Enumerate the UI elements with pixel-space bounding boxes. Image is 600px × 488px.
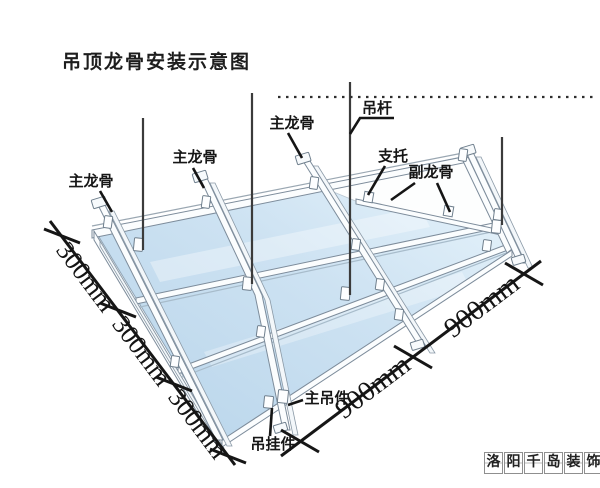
- keel-end-cap: [511, 254, 526, 265]
- ceiling-keel-diagram: 300mm 300mm 300mm 900mm 900mm 主龙骨 主龙骨 主龙…: [0, 0, 600, 488]
- label-support: 支托: [377, 147, 408, 165]
- corner-clip: [482, 239, 491, 251]
- diagram-canvas: 300mm 300mm 300mm 900mm 900mm 主龙骨 主龙骨 主龙…: [0, 0, 600, 488]
- watermark-char: 饰: [584, 452, 600, 474]
- keel-clip: [309, 177, 319, 190]
- label-sub-keel: 副龙骨: [408, 163, 453, 181]
- keel-clip: [394, 308, 403, 320]
- label-main-keel-left: 主龙骨: [68, 172, 113, 190]
- label-main-hanger: 主吊件: [304, 389, 349, 407]
- keel-clip: [201, 196, 211, 209]
- label-hanging-clip: 吊挂件: [250, 435, 295, 453]
- page-title: 吊顶龙骨安装示意图: [62, 50, 251, 73]
- pointer-main-keel-top: [288, 133, 302, 158]
- pointer-hanger-rod: [350, 118, 394, 134]
- main-hanger-piece: [277, 390, 288, 404]
- watermark-char: 千: [524, 452, 543, 474]
- keel-clip: [103, 216, 113, 229]
- keel-clip: [375, 278, 384, 290]
- label-main-keel-mid: 主龙骨: [172, 148, 217, 166]
- label-hanger-rod: 吊杆: [362, 99, 392, 117]
- keel-clip: [351, 238, 360, 250]
- watermark-char: 装: [564, 452, 583, 474]
- watermark-char: 洛: [484, 452, 503, 474]
- watermark-char: 岛: [544, 452, 563, 474]
- rod-clip: [491, 220, 501, 234]
- keel-clip: [256, 325, 265, 337]
- watermark-char: 阳: [504, 452, 523, 474]
- label-main-keel-top: 主龙骨: [269, 114, 314, 132]
- keel-clip: [458, 149, 468, 162]
- hanging-clip-piece: [263, 396, 273, 409]
- watermark: 洛 阳 千 岛 装 饰: [484, 452, 600, 474]
